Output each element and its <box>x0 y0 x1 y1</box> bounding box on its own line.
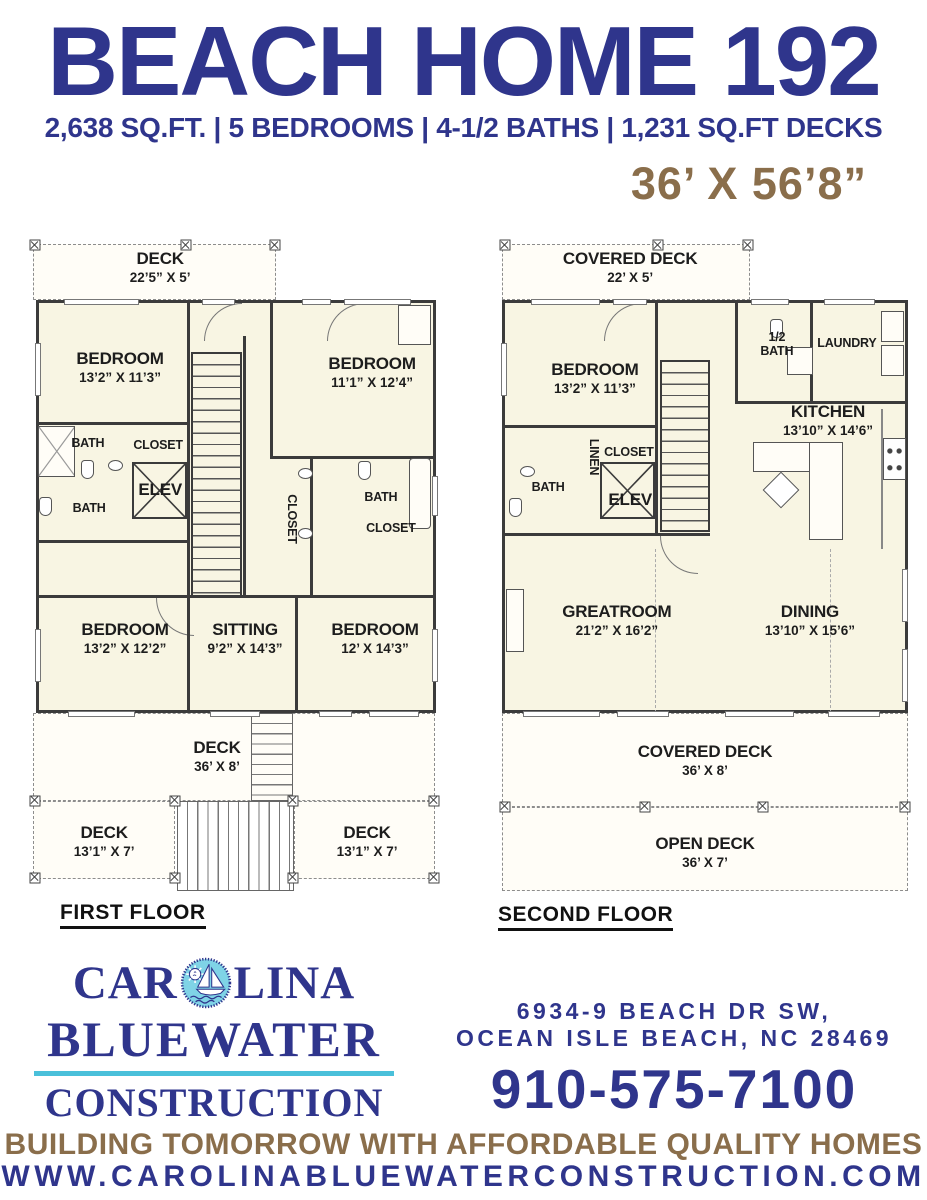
wall <box>735 300 738 401</box>
room-label-closet: CLOSET <box>366 521 416 535</box>
window <box>369 711 419 717</box>
sink-symbol <box>108 460 123 471</box>
dryer-symbol <box>881 345 903 376</box>
room-label-bath: BATH <box>71 436 104 450</box>
room-label-bedroom: BEDROOM 12’ X 14’3” <box>331 620 418 656</box>
window <box>35 343 41 396</box>
room-label-closet: CLOSET <box>285 494 299 544</box>
room-label-bath: BATH <box>532 480 565 494</box>
window <box>824 299 876 305</box>
room-label-dining: DINING 13’10” X 15’6” <box>765 602 855 638</box>
room-label-elev: ELEV <box>138 480 182 500</box>
deck-post <box>169 873 180 884</box>
wall <box>243 336 246 596</box>
room-label-half-bath: 1/2 BATH <box>760 330 793 358</box>
logo-text-car: CAR <box>73 956 178 1010</box>
window <box>523 711 600 717</box>
window <box>828 711 880 717</box>
phone-number: 910-575-7100 <box>438 1057 910 1121</box>
sink-symbol <box>298 468 313 479</box>
room-label-linen: LINEN <box>587 439 601 476</box>
window-seat <box>398 305 431 345</box>
window <box>725 711 794 717</box>
room-label-bath: BATH <box>73 501 106 515</box>
exterior-stairs <box>177 801 294 892</box>
room-label-kitchen: KITCHEN 13’10” X 14’6” <box>783 402 873 438</box>
room-label-bedroom: BEDROOM 13’2” X 11’3” <box>76 349 163 385</box>
sink-symbol <box>298 528 313 539</box>
room-label-bedroom: BEDROOM 13’2” X 11’3” <box>551 360 638 396</box>
room-label-elev: ELEV <box>608 490 652 510</box>
window <box>202 299 235 305</box>
wall <box>270 300 273 457</box>
flyer-page: BEACH HOME 192 2,638 SQ.FT. | 5 BEDROOMS… <box>0 0 927 1200</box>
room-label-closet: CLOSET <box>604 445 654 459</box>
toilet-symbol <box>81 460 94 479</box>
shower-symbol <box>38 426 76 477</box>
website-link[interactable]: WWW.CAROLINABLUEWATERCONSTRUCTION.COM <box>0 1160 927 1194</box>
deck-post <box>428 795 439 806</box>
deck-post <box>500 801 511 812</box>
tub-symbol <box>409 458 432 529</box>
company-logo: CAR LINA BLUEWATER CONSTRUCT <box>26 956 402 1126</box>
room-label-covered-deck: COVERED DECK 36’ X 8’ <box>638 742 773 778</box>
deck-post <box>30 795 41 806</box>
room-label-closet: CLOSET <box>133 438 183 452</box>
deck-post <box>899 801 910 812</box>
toilet-symbol <box>39 497 52 516</box>
room-label-bedroom: BEDROOM 11’1” X 12’4” <box>328 354 415 390</box>
wall <box>502 533 710 536</box>
stairs <box>660 360 710 532</box>
logo-line-bluewater: BLUEWATER <box>26 1010 402 1068</box>
wall <box>295 595 298 713</box>
contact-block: 6934-9 BEACH DR SW, OCEAN ISLE BEACH, NC… <box>438 998 910 1121</box>
specs-line: 2,638 SQ.FT. | 5 BEDROOMS | 4-1/2 BATHS … <box>0 112 927 144</box>
wall <box>655 300 658 533</box>
window <box>344 299 411 305</box>
window <box>902 649 908 702</box>
first-floor-label: FIRST FLOOR <box>60 901 206 929</box>
deck-post <box>639 801 650 812</box>
window <box>210 711 260 717</box>
room-label-open-deck: OPEN DECK 36’ X 7’ <box>655 834 754 870</box>
second-floor-plan: COVERED DECK 22’ X 5’ BEDROOM 13’2” X 11… <box>484 236 914 902</box>
washer-symbol <box>881 311 903 342</box>
window <box>35 629 41 682</box>
logo-line-carolina: CAR LINA <box>26 956 402 1010</box>
wall <box>187 595 190 713</box>
room-label-deck: DECK 22’5” X 5’ <box>130 249 191 285</box>
deck-post <box>428 873 439 884</box>
deck-post <box>500 240 511 251</box>
window-seat <box>506 589 524 652</box>
window <box>68 711 135 717</box>
deck-post <box>743 240 754 251</box>
window <box>902 569 908 622</box>
window <box>617 711 669 717</box>
tagline: BUILDING TOMORROW WITH AFFORDABLE QUALIT… <box>0 1128 927 1162</box>
window <box>613 299 647 305</box>
window <box>751 299 790 305</box>
sun-sailboat-icon <box>180 957 232 1009</box>
deck-post <box>30 873 41 884</box>
logo-text-lina: LINA <box>234 956 356 1010</box>
deck-post <box>169 795 180 806</box>
stairs <box>191 352 242 597</box>
window <box>531 299 600 305</box>
overall-dimensions: 36’ X 56’8” <box>0 158 867 210</box>
kitchen-island <box>809 442 843 541</box>
wall <box>36 595 436 598</box>
toilet-symbol <box>509 498 522 517</box>
room-label-covered-deck: COVERED DECK 22’ X 5’ <box>563 249 698 285</box>
deck-post <box>30 240 41 251</box>
wall <box>36 540 187 543</box>
window <box>319 711 352 717</box>
room-label-deck: DECK 13’1” X 7’ <box>74 823 135 859</box>
logo-divider <box>34 1071 394 1076</box>
toilet-symbol <box>358 461 371 480</box>
room-label-deck: DECK 13’1” X 7’ <box>337 823 398 859</box>
wall <box>36 422 187 425</box>
deck-post <box>288 795 299 806</box>
room-label-sitting: SITTING 9’2” X 14’3” <box>208 620 283 656</box>
window <box>501 343 507 396</box>
deck-post <box>270 240 281 251</box>
exterior-stairs <box>251 713 293 801</box>
deck-post <box>758 801 769 812</box>
wall <box>187 300 190 596</box>
window <box>302 299 331 305</box>
deck-post <box>288 873 299 884</box>
first-floor-plan: DECK 22’5” X 5’ BEDROOM 13’2” X 11’3” BE… <box>26 236 444 902</box>
room-label-bedroom: BEDROOM 13’2” X 12’2” <box>81 620 168 656</box>
window <box>432 476 438 516</box>
room-label-greatroom: GREATROOM 21’2” X 16’2” <box>562 602 671 638</box>
second-floor-label: SECOND FLOOR <box>498 903 673 931</box>
address-line1: 6934-9 BEACH DR SW, <box>438 998 910 1025</box>
room-label-bath: BATH <box>364 490 397 504</box>
wall <box>502 425 655 428</box>
logo-line-construction: CONSTRUCTION <box>26 1079 402 1126</box>
page-title: BEACH HOME 192 <box>0 16 927 106</box>
room-label-deck: DECK 36’ X 8’ <box>193 738 240 774</box>
window <box>64 299 139 305</box>
room-label-laundry: LAUNDRY <box>817 336 876 350</box>
stove-symbol <box>883 438 906 479</box>
address-line2: OCEAN ISLE BEACH, NC 28469 <box>438 1025 910 1052</box>
window <box>432 629 438 682</box>
